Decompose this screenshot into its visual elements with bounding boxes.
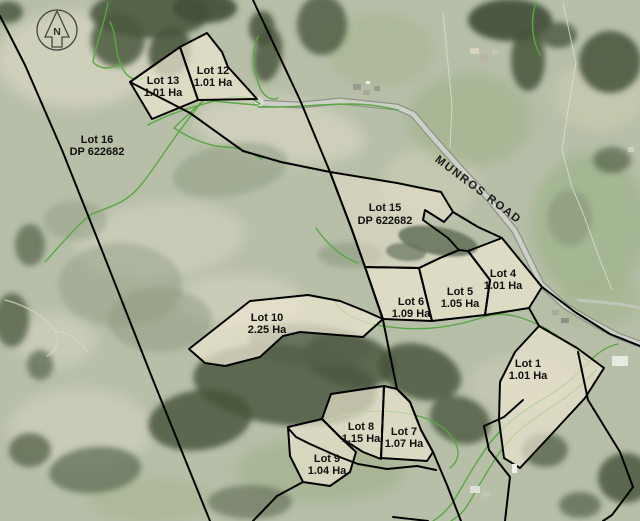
lot-12-label: Lot 12 — [197, 65, 229, 77]
lot-1-area: 1.01 Ha — [509, 370, 548, 382]
lot-1-label: Lot 1 — [515, 358, 541, 370]
lot-6-area: 1.09 Ha — [392, 308, 431, 320]
lot-7-label: Lot 7 — [391, 426, 417, 438]
building — [480, 55, 488, 61]
lot-4-area: 1.01 Ha — [484, 280, 523, 292]
lot-7-area: 1.07 Ha — [385, 438, 424, 450]
building — [552, 310, 559, 315]
building — [612, 356, 628, 366]
lot-12-area: 1.01 Ha — [194, 77, 233, 89]
lot-16-area: DP 622682 — [70, 146, 125, 158]
building — [366, 81, 370, 84]
lot-9-area: 1.04 Ha — [308, 465, 347, 477]
lot-10-area: 2.25 Ha — [248, 324, 287, 336]
lot-10-label: Lot 10 — [251, 312, 283, 324]
lot-5-label: Lot 5 — [447, 286, 473, 298]
building — [470, 486, 480, 493]
building — [561, 318, 569, 323]
building — [492, 50, 498, 55]
aerial-subdivision-map: Lot 13 1.01 Ha Lot 12 1.01 Ha Lot 16 DP … — [0, 0, 640, 521]
lot-16-label: Lot 16 — [81, 134, 113, 146]
lot-8-area: 1.15 Ha — [342, 433, 381, 445]
lot-9-label: Lot 9 — [314, 453, 340, 465]
building — [483, 492, 491, 497]
lot-4-label: Lot 4 — [490, 268, 517, 280]
building — [628, 147, 634, 152]
lot-15-label: Lot 15 — [369, 202, 401, 214]
building — [374, 86, 380, 91]
building — [512, 464, 517, 473]
lot-13-label: Lot 13 — [147, 75, 179, 87]
lot-15-area: DP 622682 — [358, 215, 413, 227]
lot-13-area: 1.01 Ha — [144, 87, 183, 99]
building — [363, 90, 370, 95]
lot-8-label: Lot 8 — [348, 421, 374, 433]
building — [353, 84, 361, 90]
compass-north-label: N — [53, 26, 61, 38]
building — [470, 48, 479, 54]
lot-5-area: 1.05 Ha — [441, 298, 480, 310]
lot-6-label: Lot 6 — [398, 296, 424, 308]
